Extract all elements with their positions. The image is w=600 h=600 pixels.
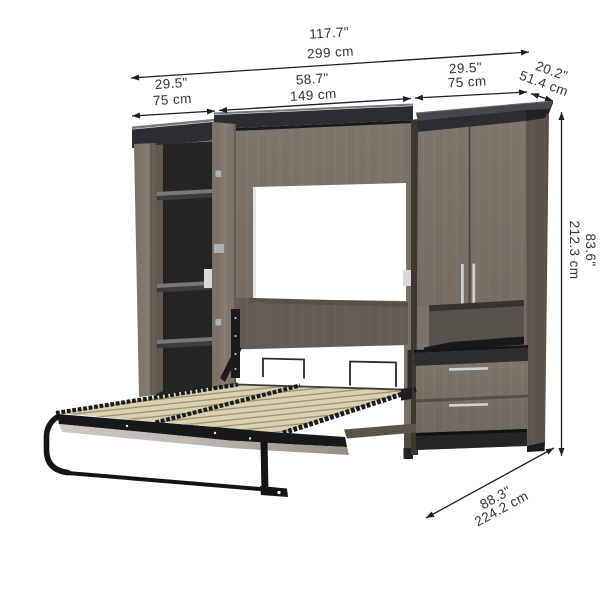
- svg-text:83.6": 83.6": [583, 233, 598, 266]
- svg-text:75 cm: 75 cm: [447, 73, 487, 90]
- svg-text:149 cm: 149 cm: [290, 86, 338, 104]
- svg-text:29.5": 29.5": [154, 75, 188, 92]
- svg-text:58.7": 58.7": [295, 70, 329, 87]
- svg-text:212.3 cm: 212.3 cm: [567, 221, 582, 280]
- svg-text:75 cm: 75 cm: [153, 91, 193, 108]
- svg-text:299 cm: 299 cm: [307, 43, 355, 61]
- svg-text:117.7": 117.7": [309, 24, 350, 42]
